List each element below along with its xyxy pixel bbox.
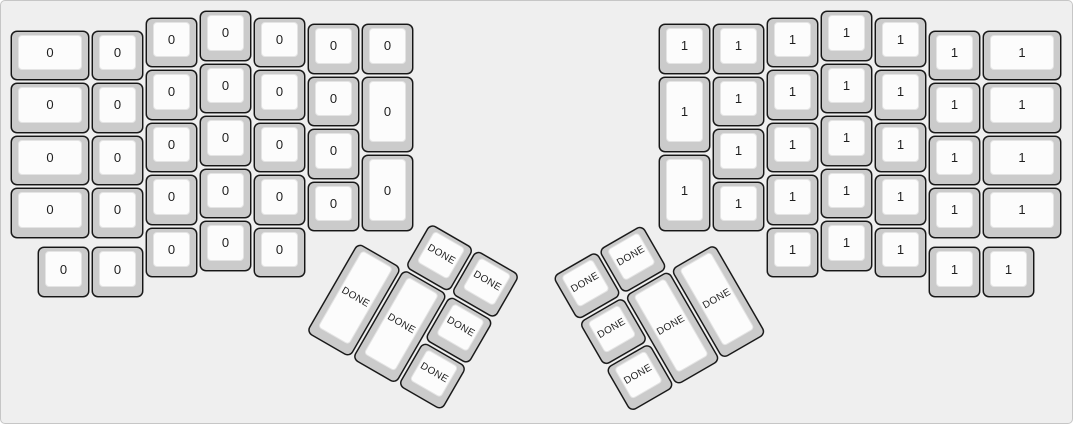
- keycap-label: 0: [330, 39, 337, 52]
- keycap-label: 0: [222, 184, 229, 197]
- keycap[interactable]: 0: [200, 221, 251, 271]
- keycap-top: 1: [828, 68, 865, 104]
- keycap-top: DONE: [607, 232, 656, 281]
- keycap-top: 1: [882, 232, 919, 268]
- keycap-top: 0: [369, 28, 406, 64]
- keycap-label: 0: [222, 26, 229, 39]
- keycap-top: 1: [666, 28, 703, 64]
- keycap-top: DONE: [614, 350, 663, 399]
- keycap-top: 0: [18, 192, 82, 228]
- keycap[interactable]: 0: [146, 123, 197, 173]
- keycap-label: 1: [735, 197, 742, 210]
- keycap-top: 1: [774, 232, 811, 268]
- keycap-label: 0: [222, 131, 229, 144]
- keycap-top: 1: [828, 120, 865, 156]
- keycap[interactable]: 0: [38, 247, 89, 297]
- keycap-label: 0: [46, 151, 53, 164]
- keycap-top: 1: [828, 225, 865, 261]
- keycap-label: DONE: [701, 287, 732, 311]
- keycap[interactable]: 1: [929, 136, 980, 186]
- keycap-label: 0: [114, 203, 121, 216]
- keycap[interactable]: 1: [929, 31, 980, 81]
- keycap-label: 0: [276, 138, 283, 151]
- keycap-label: DONE: [386, 312, 417, 336]
- keycap-label: 1: [843, 131, 850, 144]
- keycap-label: 0: [276, 190, 283, 203]
- keycap-top: 1: [774, 22, 811, 58]
- keycap-top: DONE: [587, 304, 636, 353]
- keycap-top: 1: [828, 173, 865, 209]
- keycap-label: 0: [168, 85, 175, 98]
- keycap-top: 1: [882, 22, 919, 58]
- keycap[interactable]: 0: [92, 31, 143, 81]
- keycap-label: DONE: [340, 286, 371, 310]
- keycap-label: 1: [681, 184, 688, 197]
- keycap-top: 0: [18, 140, 82, 176]
- keycap-label: 1: [789, 243, 796, 256]
- keycap[interactable]: 0: [200, 64, 251, 114]
- keycap-label: 1: [735, 92, 742, 105]
- keycap-label: 1: [1018, 46, 1025, 59]
- keycap-label: DONE: [425, 243, 456, 267]
- keycap-label: 1: [897, 190, 904, 203]
- keycap-label: 1: [897, 85, 904, 98]
- keycap[interactable]: 1: [821, 116, 872, 166]
- keycap-label: 1: [789, 85, 796, 98]
- keycap[interactable]: 0: [92, 247, 143, 297]
- keycap-label: 1: [1018, 203, 1025, 216]
- keycap-label: 1: [951, 98, 958, 111]
- keycap[interactable]: 1: [983, 136, 1061, 186]
- keycap-top: 0: [315, 133, 352, 169]
- keycap-top: 1: [882, 179, 919, 215]
- keycap[interactable]: 1: [767, 70, 818, 120]
- keycap-label: 0: [276, 243, 283, 256]
- keycap[interactable]: 0: [254, 18, 305, 68]
- keycap[interactable]: 0: [308, 24, 359, 74]
- keycap[interactable]: 0: [362, 77, 413, 153]
- keycap[interactable]: 1: [767, 18, 818, 68]
- keycap[interactable]: 0: [200, 116, 251, 166]
- keycap-top: DONE: [416, 231, 465, 280]
- keycap-top: 0: [261, 232, 298, 268]
- keycap-top: 1: [936, 140, 973, 176]
- keycap-label: 0: [384, 39, 391, 52]
- keycap[interactable]: 1: [875, 228, 926, 278]
- keycap-label: DONE: [570, 271, 601, 295]
- keycap-label: 0: [114, 151, 121, 164]
- keycap-top: 1: [936, 87, 973, 123]
- keycap[interactable]: 1: [659, 155, 710, 231]
- keycap-label: DONE: [655, 314, 686, 338]
- keycap-top: 0: [315, 28, 352, 64]
- keycap-label: DONE: [596, 317, 627, 341]
- keycap-top: 0: [369, 159, 406, 221]
- keycap[interactable]: 1: [983, 83, 1061, 133]
- keycap-label: 1: [735, 144, 742, 157]
- keycap-label: 1: [735, 39, 742, 52]
- keycap-top: 1: [774, 127, 811, 163]
- keycap-label: 0: [114, 263, 121, 276]
- keycap-top: 0: [207, 68, 244, 104]
- keycap-label: 1: [843, 79, 850, 92]
- keycap-label: 1: [951, 203, 958, 216]
- keycap-top: 1: [936, 251, 973, 287]
- keycap[interactable]: 1: [659, 24, 710, 74]
- keycap-label: DONE: [471, 270, 502, 294]
- keycap-label: 0: [46, 203, 53, 216]
- keycap[interactable]: 1: [929, 83, 980, 133]
- keycap[interactable]: 1: [821, 221, 872, 271]
- keycap-label: 1: [897, 138, 904, 151]
- keycap-label: 1: [1018, 98, 1025, 111]
- keycap-top: 0: [315, 81, 352, 117]
- keycap[interactable]: 0: [254, 228, 305, 278]
- keycap-label: DONE: [445, 316, 476, 340]
- keycap[interactable]: 0: [11, 188, 89, 238]
- keycap-top: 1: [666, 159, 703, 221]
- keycap-label: DONE: [418, 361, 449, 385]
- keycap[interactable]: 0: [308, 77, 359, 127]
- keycap-label: 1: [789, 190, 796, 203]
- keycap-top: 0: [369, 81, 406, 143]
- keycap-top: 0: [261, 74, 298, 110]
- keycap-top: DONE: [561, 259, 610, 308]
- keycap-top: 1: [882, 74, 919, 110]
- keycap[interactable]: 0: [200, 169, 251, 219]
- keycap-label: 0: [384, 105, 391, 118]
- keycap[interactable]: 1: [767, 175, 818, 225]
- keycap-label: DONE: [623, 363, 654, 387]
- keycap-top: 0: [99, 192, 136, 228]
- keycap-label: 0: [168, 243, 175, 256]
- keycap[interactable]: 0: [254, 175, 305, 225]
- keycap[interactable]: 1: [713, 182, 764, 232]
- keycap-label: 0: [46, 46, 53, 59]
- keycap-label: 0: [330, 144, 337, 157]
- keycap-top: 1: [990, 140, 1054, 176]
- keycap-top: 1: [936, 35, 973, 71]
- keycap-label: 1: [843, 184, 850, 197]
- keycap-label: 0: [330, 197, 337, 210]
- keycap[interactable]: 0: [11, 31, 89, 81]
- keycap[interactable]: 1: [767, 228, 818, 278]
- keycap-top: 0: [207, 173, 244, 209]
- keycap[interactable]: 0: [92, 136, 143, 186]
- keycap-label: DONE: [616, 245, 647, 269]
- keycap-top: 0: [207, 225, 244, 261]
- keycap[interactable]: 1: [875, 175, 926, 225]
- keycap-label: 1: [897, 243, 904, 256]
- keycap[interactable]: 0: [146, 18, 197, 68]
- keycap[interactable]: 0: [146, 70, 197, 120]
- keycap-top: 1: [666, 81, 703, 143]
- keycap-top: 1: [990, 87, 1054, 123]
- keycap[interactable]: 0: [146, 175, 197, 225]
- keycap-label: 0: [384, 184, 391, 197]
- keycap-label: 0: [168, 33, 175, 46]
- keycap[interactable]: 1: [875, 18, 926, 68]
- keycap-label: 0: [276, 85, 283, 98]
- keycap-top: 0: [261, 179, 298, 215]
- keycap-top: 1: [774, 74, 811, 110]
- keycap-label: 0: [114, 46, 121, 59]
- keycap[interactable]: 0: [92, 83, 143, 133]
- keycap-top: 1: [774, 179, 811, 215]
- keycap[interactable]: 0: [362, 24, 413, 74]
- keycap[interactable]: 1: [821, 64, 872, 114]
- keycap-label: 1: [1005, 263, 1012, 276]
- keycap-top: 1: [936, 192, 973, 228]
- keycap-label: 1: [951, 46, 958, 59]
- keycap-top: 0: [261, 22, 298, 58]
- keycap[interactable]: 1: [983, 247, 1034, 297]
- keycap-label: 1: [951, 151, 958, 164]
- keycap-top: 0: [99, 35, 136, 71]
- keycap-top: 1: [720, 81, 757, 117]
- keycap[interactable]: 1: [713, 77, 764, 127]
- keycap-top: 0: [153, 232, 190, 268]
- keycap-label: 1: [1018, 151, 1025, 164]
- keyboard-layout-canvas: DONEDONEDONEDONEDONEDONE DONEDONEDONEDON…: [0, 0, 1073, 424]
- keycap[interactable]: 0: [200, 11, 251, 61]
- keycap[interactable]: 1: [983, 31, 1061, 81]
- keycap-label: 1: [843, 26, 850, 39]
- keycap-label: 0: [168, 190, 175, 203]
- keycap-label: 0: [222, 79, 229, 92]
- keycap-label: 0: [46, 98, 53, 111]
- keycap-top: 0: [153, 22, 190, 58]
- keycap[interactable]: 1: [929, 188, 980, 238]
- keycap-top: 0: [18, 35, 82, 71]
- keycap[interactable]: 1: [713, 129, 764, 179]
- keycap-label: 0: [222, 236, 229, 249]
- keycap-top: 0: [207, 120, 244, 156]
- keycap[interactable]: 0: [254, 70, 305, 120]
- keycap[interactable]: 0: [92, 188, 143, 238]
- keycap-top: 0: [18, 87, 82, 123]
- keycap[interactable]: 1: [821, 169, 872, 219]
- keycap-label: 0: [60, 263, 67, 276]
- keycap[interactable]: 1: [929, 247, 980, 297]
- keycap-top: 0: [45, 251, 82, 287]
- keycap[interactable]: 1: [659, 77, 710, 153]
- keycap-top: 1: [720, 28, 757, 64]
- keycap-top: 1: [720, 133, 757, 169]
- keycap-top: 1: [882, 127, 919, 163]
- keycap-top: 0: [153, 74, 190, 110]
- keycap-top: DONE: [409, 349, 458, 398]
- keycap[interactable]: 0: [362, 155, 413, 231]
- keycap-top: DONE: [462, 257, 511, 306]
- keycap-label: 1: [681, 105, 688, 118]
- keycap[interactable]: 1: [875, 123, 926, 173]
- keycap-top: 1: [720, 186, 757, 222]
- keycap-top: 1: [990, 192, 1054, 228]
- keycap-top: 0: [153, 127, 190, 163]
- keycap-label: 1: [789, 138, 796, 151]
- keycap[interactable]: 1: [767, 123, 818, 173]
- keycap[interactable]: 1: [713, 24, 764, 74]
- keycap-top: 0: [153, 179, 190, 215]
- keycap[interactable]: 0: [308, 129, 359, 179]
- keycap[interactable]: 0: [11, 83, 89, 133]
- keycap-top: 1: [990, 251, 1027, 287]
- keycap[interactable]: 0: [254, 123, 305, 173]
- keycap[interactable]: 1: [821, 11, 872, 61]
- keycap-top: DONE: [436, 303, 485, 352]
- keycap-label: 1: [843, 236, 850, 249]
- keycap-top: 1: [990, 35, 1054, 71]
- keycap-label: 1: [681, 39, 688, 52]
- keycap[interactable]: 1: [875, 70, 926, 120]
- keycap-label: 0: [168, 138, 175, 151]
- keycap-label: 0: [114, 98, 121, 111]
- keycap-top: 0: [315, 186, 352, 222]
- keycap-top: 0: [99, 140, 136, 176]
- keycap-top: 1: [828, 15, 865, 51]
- keycap-label: 0: [330, 92, 337, 105]
- keycap-label: 1: [789, 33, 796, 46]
- keycap[interactable]: 0: [308, 182, 359, 232]
- keycap[interactable]: 0: [146, 228, 197, 278]
- keycap[interactable]: 0: [11, 136, 89, 186]
- keycap-label: 1: [897, 33, 904, 46]
- keycap-label: 1: [951, 263, 958, 276]
- keycap-top: 0: [261, 127, 298, 163]
- keycap-top: 0: [99, 251, 136, 287]
- keycap-label: 0: [276, 33, 283, 46]
- keycap[interactable]: 1: [983, 188, 1061, 238]
- keycap-top: 0: [207, 15, 244, 51]
- keycap-top: 0: [99, 87, 136, 123]
